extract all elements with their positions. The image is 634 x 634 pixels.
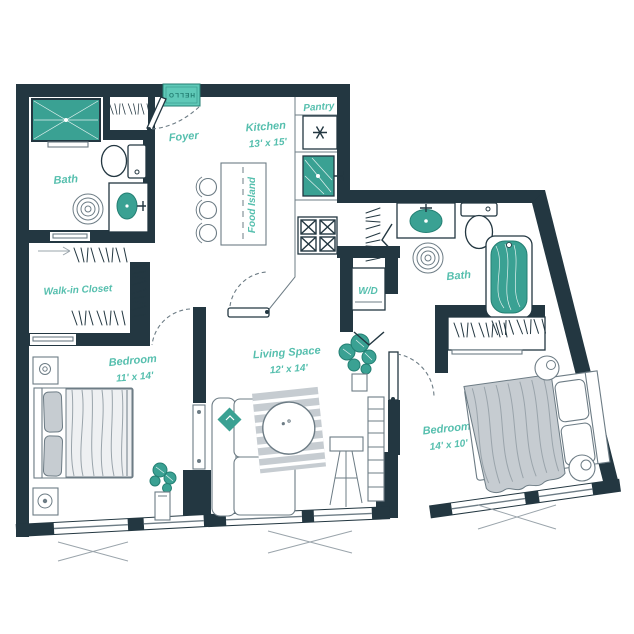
- plant: [150, 463, 176, 520]
- bedroom-1-dims: 11' x 14': [116, 370, 155, 384]
- closet: [448, 317, 545, 354]
- living-dims: 12' x 14': [269, 363, 308, 377]
- appliance-star: [303, 116, 337, 149]
- bedroom-1: Bedroom 11' x 14': [33, 353, 176, 520]
- bedroom-1-label: Bedroom: [108, 353, 157, 369]
- kitchen-island: Food Island: [221, 163, 266, 245]
- bedroom-2-label: Bedroom: [422, 421, 471, 438]
- walk-in-closet: Walk-in Closet: [30, 248, 190, 345]
- washer-dryer-label: W/D: [358, 286, 377, 297]
- closet-slide-door: [30, 334, 76, 345]
- living-space: Living Space 12' x 14': [193, 334, 384, 516]
- nightstand: [33, 357, 58, 384]
- bar-stools: [196, 177, 216, 243]
- round-side-table: [569, 455, 595, 481]
- floor-plan: HELLO Foyer: [0, 0, 634, 634]
- tv: [193, 405, 205, 469]
- bath-rug: [413, 243, 443, 273]
- floor-lamp: [330, 437, 363, 507]
- round-side-table: [535, 356, 559, 380]
- coat-closet: [110, 104, 150, 115]
- foyer-label: Foyer: [168, 130, 200, 145]
- bedroom-2-door: [389, 352, 434, 401]
- kitchen-label: Kitchen: [245, 120, 286, 135]
- welcome-mat: HELLO: [163, 84, 200, 106]
- plant: [339, 334, 376, 391]
- kitchen-door: [228, 272, 269, 317]
- bookshelf: [368, 397, 384, 501]
- kitchen: Kitchen 13' x 15' Pantry Food Island: [196, 97, 344, 317]
- bedroom-2-dims: 14' x 10': [429, 438, 469, 453]
- bath-1-label: Bath: [53, 173, 79, 187]
- shower: [32, 99, 100, 147]
- stove: [298, 217, 337, 254]
- bedroom-1-bottom-wall: [16, 514, 212, 537]
- pantry-label: Pantry: [303, 101, 335, 114]
- nightstand: [33, 488, 58, 515]
- washer-dryer: W/D: [352, 268, 385, 345]
- island-label: Food Island: [247, 176, 258, 233]
- kitchen-dims: 13' x 15': [248, 137, 287, 151]
- sink: [109, 183, 148, 232]
- bath-rug: [73, 194, 103, 224]
- living-label: Living Space: [253, 345, 322, 362]
- sink: [397, 203, 455, 238]
- bed: [34, 388, 133, 478]
- bathtub: [486, 236, 532, 318]
- bedroom-1-door-arc: [152, 309, 190, 345]
- mat-label: HELLO: [168, 91, 195, 98]
- bath-2-label: Bath: [446, 269, 472, 283]
- walk-in-closet-label: Walk-in Closet: [43, 283, 113, 298]
- area-rug: [252, 387, 326, 473]
- toilet: [102, 145, 147, 178]
- floor-plan-drawing: HELLO Foyer: [0, 0, 634, 634]
